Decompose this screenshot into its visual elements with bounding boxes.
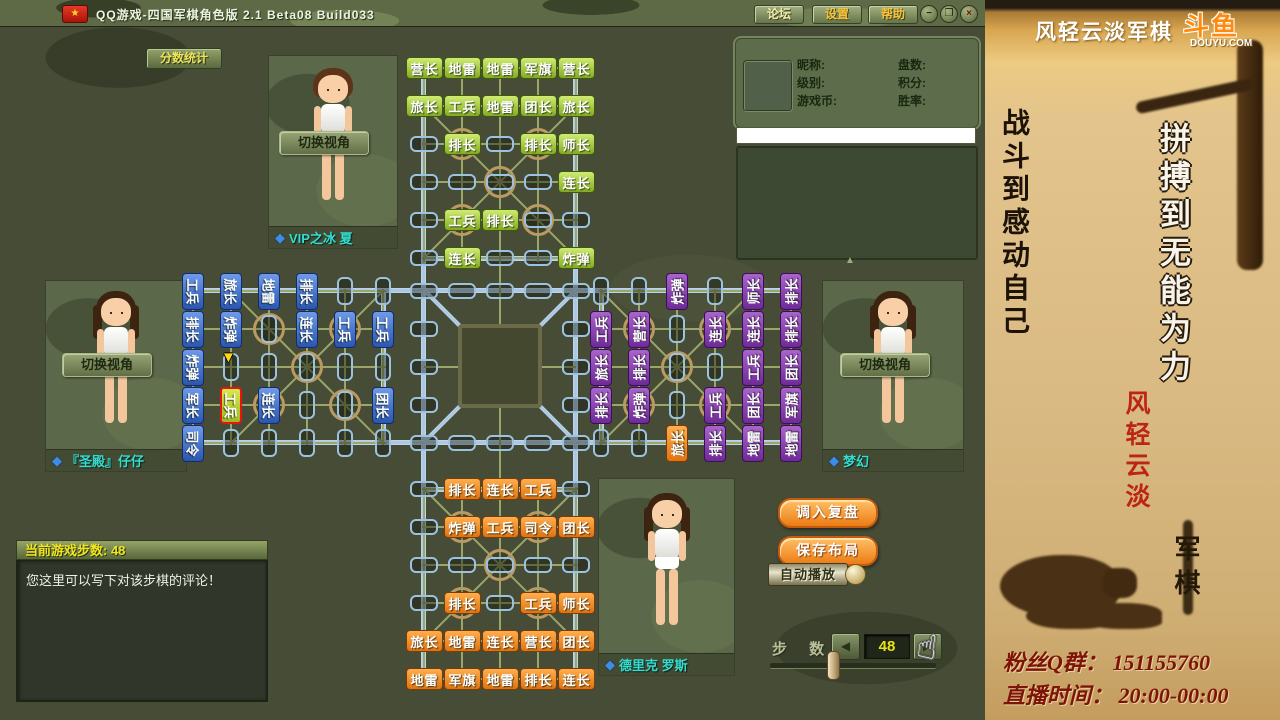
board-node[interactable]: [375, 429, 391, 457]
board-piece[interactable]: 地雷: [444, 57, 481, 79]
vip-gem-icon: ◆: [52, 453, 62, 469]
board-piece[interactable]: 排长: [780, 311, 802, 348]
board-node[interactable]: [707, 277, 723, 305]
ox-art: [1000, 555, 1120, 617]
board-piece[interactable]: 工兵: [182, 273, 204, 310]
switch-view-button-right[interactable]: 切换视角: [840, 353, 930, 377]
road-line: [599, 442, 795, 444]
board-piece[interactable]: 连长: [482, 630, 519, 652]
board-piece[interactable]: 师长: [558, 133, 595, 155]
road-line: [190, 442, 386, 444]
board-piece[interactable]: 军长: [182, 387, 204, 424]
board-piece[interactable]: 地雷: [258, 273, 280, 310]
stream-time: 直播时间： 20:00-00:00: [1003, 678, 1228, 710]
board-node[interactable]: [562, 212, 590, 228]
board-piece[interactable]: 地雷: [780, 425, 802, 462]
board-node[interactable]: [299, 391, 315, 419]
chat-input[interactable]: [736, 127, 976, 144]
board-node[interactable]: [486, 283, 514, 299]
board-node[interactable]: [562, 397, 590, 413]
board-node[interactable]: [410, 481, 438, 497]
board-piece[interactable]: 炸弹: [558, 247, 595, 269]
board-piece[interactable]: 旅长: [590, 349, 612, 386]
board-piece[interactable]: 工兵: [444, 95, 481, 117]
board-piece[interactable]: 连长: [258, 387, 280, 424]
steps-label: 步 数: [772, 638, 833, 659]
board-piece[interactable]: 连长: [704, 311, 726, 348]
autoplay-button[interactable]: 自动播放: [768, 563, 848, 586]
board-node[interactable]: [337, 353, 353, 381]
restore-button[interactable]: ❐: [940, 5, 958, 23]
board-node[interactable]: [524, 212, 552, 228]
board-node[interactable]: [707, 353, 723, 381]
player-name-bar: ◆ 德里克 罗斯: [599, 653, 734, 675]
move-counter-bar: 当前游戏步数: 48: [16, 540, 268, 560]
channel-title: 风轻云淡军棋: [1035, 16, 1173, 46]
board-node[interactable]: [410, 321, 438, 337]
board-node[interactable]: [524, 557, 552, 573]
minimize-button[interactable]: −: [920, 5, 938, 23]
board-piece[interactable]: 地雷: [742, 425, 764, 462]
winrate-label: 胜率:: [898, 92, 926, 109]
score-stats-button[interactable]: 分数统计: [146, 48, 222, 69]
board-piece[interactable]: 排长: [628, 349, 650, 386]
board-node[interactable]: [410, 435, 438, 451]
slogan-white: 拼搏到无能为力: [1150, 122, 1195, 388]
board-piece[interactable]: 团长: [372, 387, 394, 424]
board-piece[interactable]: 工兵: [444, 209, 481, 231]
board-piece[interactable]: 旅长: [406, 95, 443, 117]
board-node[interactable]: [410, 136, 438, 152]
board-piece[interactable]: 排长: [590, 387, 612, 424]
road-line: [190, 366, 386, 368]
settings-button[interactable]: 设置: [812, 5, 862, 24]
board-node[interactable]: [593, 277, 609, 305]
board-node[interactable]: [486, 557, 514, 573]
board-piece[interactable]: 排长: [704, 425, 726, 462]
board-node[interactable]: [562, 557, 590, 573]
board-piece[interactable]: 团长: [520, 95, 557, 117]
board-piece[interactable]: 连长: [558, 668, 595, 690]
board-piece[interactable]: 营长: [520, 630, 557, 652]
board-node[interactable]: [337, 277, 353, 305]
board-piece[interactable]: 营长: [406, 57, 443, 79]
player-name: 『圣殿』仔仔: [66, 451, 144, 470]
board-piece[interactable]: 营长: [558, 57, 595, 79]
board-piece[interactable]: 工兵: [482, 516, 519, 538]
board-node[interactable]: [486, 136, 514, 152]
board-node[interactable]: [562, 435, 590, 451]
board-piece[interactable]: 炸弹: [444, 516, 481, 538]
board-piece[interactable]: 旅长: [220, 273, 242, 310]
points-label: 积分:: [898, 74, 926, 91]
board-piece[interactable]: 排长: [780, 273, 802, 310]
board-node[interactable]: [524, 283, 552, 299]
save-layout-button[interactable]: 保存布局: [778, 536, 878, 566]
board-piece[interactable]: 地雷: [482, 57, 519, 79]
board-piece[interactable]: 师长: [558, 592, 595, 614]
board-node[interactable]: [562, 283, 590, 299]
comment-box[interactable]: 您这里可以写下对该步棋的评论！: [16, 560, 268, 702]
close-button[interactable]: ×: [960, 5, 978, 23]
board-piece[interactable]: 营长: [628, 311, 650, 348]
board-piece[interactable]: 工兵: [334, 311, 356, 348]
board-node[interactable]: [375, 277, 391, 305]
board-piece[interactable]: 团长: [558, 630, 595, 652]
board-piece[interactable]: 旅长: [558, 95, 595, 117]
board-piece[interactable]: 排长: [482, 209, 519, 231]
vip-gem-icon: ◆: [829, 453, 839, 469]
board-node[interactable]: [410, 519, 438, 535]
board-piece[interactable]: 军旗: [520, 57, 557, 79]
board-piece[interactable]: 炸弹: [182, 349, 204, 386]
board-piece[interactable]: 连长: [444, 247, 481, 269]
board-node[interactable]: [669, 315, 685, 343]
player-name: 德里克 罗斯: [619, 655, 688, 674]
board-piece[interactable]: 连长: [558, 171, 595, 193]
board-node[interactable]: [261, 315, 277, 343]
load-replay-button[interactable]: 调入复盘: [778, 498, 878, 528]
board-node[interactable]: [524, 435, 552, 451]
game-name-vertical: 军棋: [1167, 535, 1204, 603]
info-avatar-slot: [743, 60, 793, 112]
title-bar: ★ QQ游戏-四国军棋角色版 2.1 Beta08 Build033 论坛 设置…: [0, 0, 985, 27]
board-piece[interactable]: 军旗: [780, 387, 802, 424]
board-node[interactable]: [486, 435, 514, 451]
board-piece[interactable]: 团长: [780, 349, 802, 386]
board-piece[interactable]: 连长: [742, 311, 764, 348]
board-piece[interactable]: 旅长: [666, 425, 688, 462]
step-slider-track[interactable]: [770, 663, 936, 669]
board-piece[interactable]: 司令: [520, 516, 557, 538]
selected-cursor-icon: ▼: [221, 349, 236, 366]
board-node[interactable]: [337, 429, 353, 457]
slogan-black: 战斗到感动自己: [993, 108, 1033, 339]
game-window: ★ QQ游戏-四国军棋角色版 2.1 Beta08 Build033 论坛 设置…: [0, 0, 987, 720]
board-node[interactable]: [410, 557, 438, 573]
board-node[interactable]: [375, 353, 391, 381]
board-node[interactable]: [410, 283, 438, 299]
board-node[interactable]: [223, 429, 239, 457]
hand-cursor-icon: ☝: [914, 626, 939, 667]
stream-overlay: 风轻云淡军棋 斗鱼 DOUYU.COM 战斗到感动自己 拼搏到无能为力 风轻云淡…: [985, 0, 1280, 720]
board-piece[interactable]: 连长: [296, 311, 318, 348]
board-node[interactable]: [562, 359, 590, 375]
board-node[interactable]: [410, 397, 438, 413]
board-piece[interactable]: 地雷: [406, 668, 443, 690]
board-node[interactable]: [631, 277, 647, 305]
douyu-domain: DOUYU.COM: [1190, 38, 1252, 49]
screenshot-stage: ★ QQ游戏-四国军棋角色版 2.1 Beta08 Build033 论坛 设置…: [0, 0, 1280, 720]
board-piece[interactable]: 司令: [182, 425, 204, 462]
player-name-bar: ◆ 『圣殿』仔仔: [46, 449, 186, 471]
board-node[interactable]: [448, 557, 476, 573]
board-node[interactable]: [486, 174, 514, 190]
board-piece[interactable]: 旅长: [406, 630, 443, 652]
step-slider-thumb[interactable]: [827, 651, 840, 680]
bullet-tip-icon: [845, 564, 866, 585]
board-piece[interactable]: 地雷: [444, 630, 481, 652]
player-name-bar: ◆ VIP之冰 夏: [269, 226, 397, 248]
board-node[interactable]: [299, 429, 315, 457]
board-piece[interactable]: 师长: [742, 273, 764, 310]
switch-view-button-top[interactable]: 切换视角: [279, 131, 369, 155]
board-node[interactable]: [410, 250, 438, 266]
board-piece[interactable]: 炸弹: [220, 311, 242, 348]
avatar-figure: [637, 493, 697, 643]
board-node[interactable]: [562, 321, 590, 337]
board-piece[interactable]: 连长: [482, 478, 519, 500]
board-piece[interactable]: 地雷: [482, 95, 519, 117]
help-button[interactable]: 帮助: [868, 5, 918, 24]
scroll-up-icon[interactable]: ▲: [845, 255, 855, 266]
player-panel-bottom: ◆ 德里克 罗斯: [598, 478, 735, 676]
board-piece[interactable]: 排长: [444, 592, 481, 614]
board-node[interactable]: [669, 353, 685, 381]
board-node[interactable]: [261, 429, 277, 457]
board-piece[interactable]: 排长: [444, 478, 481, 500]
board-node[interactable]: [410, 595, 438, 611]
board-piece[interactable]: 团长: [558, 516, 595, 538]
board-piece[interactable]: 工兵: [520, 592, 557, 614]
fans-qq-group: 粉丝Q群： 151155760: [1003, 645, 1210, 677]
forum-button[interactable]: 论坛: [754, 5, 804, 24]
board-node[interactable]: [486, 595, 514, 611]
board-piece[interactable]: 工兵: [520, 478, 557, 500]
board-node[interactable]: [448, 435, 476, 451]
board-piece[interactable]: 炸弹: [666, 273, 688, 310]
board-piece[interactable]: 排长: [296, 273, 318, 310]
coins-label: 游戏币:: [797, 92, 837, 109]
board-node[interactable]: [631, 429, 647, 457]
board-piece[interactable]: 工兵: [590, 311, 612, 348]
board-node[interactable]: [669, 391, 685, 419]
step-value: 48: [864, 634, 910, 659]
window-title: QQ游戏-四国军棋角色版 2.1 Beta08 Build033: [96, 6, 375, 23]
vip-gem-icon: ◆: [605, 657, 615, 673]
streamer-name-vertical: 风轻云淡: [1117, 390, 1153, 514]
board-node[interactable]: [410, 359, 438, 375]
level-label: 级别:: [797, 74, 825, 91]
qq-game-logo-icon: ★: [62, 5, 88, 23]
board-node[interactable]: [261, 353, 277, 381]
board-piece[interactable]: 排长: [520, 668, 557, 690]
board-piece[interactable]: 地雷: [482, 668, 519, 690]
switch-view-button-left[interactable]: 切换视角: [62, 353, 152, 377]
board-node[interactable]: [486, 250, 514, 266]
vip-gem-icon: ◆: [275, 230, 285, 246]
player-name-bar: ◆ 梦幻: [823, 449, 963, 471]
board-node[interactable]: [410, 174, 438, 190]
board-node[interactable]: [524, 174, 552, 190]
board-node[interactable]: [562, 481, 590, 497]
board-piece[interactable]: 炸弹: [628, 387, 650, 424]
board-node[interactable]: [524, 250, 552, 266]
player-info-panel: 昵称: 级别: 游戏币: 盘数: 积分: 胜率:: [733, 36, 981, 130]
board-node[interactable]: [410, 212, 438, 228]
games-label: 盘数:: [898, 56, 926, 73]
board-node[interactable]: [299, 353, 315, 381]
board-piece[interactable]: 工兵: [704, 387, 726, 424]
chat-log-panel[interactable]: [736, 146, 978, 260]
nickname-label: 昵称:: [797, 56, 825, 73]
board-piece[interactable]: 团长: [742, 387, 764, 424]
player-name: 梦幻: [843, 451, 869, 470]
player-name: VIP之冰 夏: [289, 228, 353, 247]
board-piece[interactable]: 排长: [182, 311, 204, 348]
board-node[interactable]: [448, 174, 476, 190]
board-node[interactable]: [593, 429, 609, 457]
ox-head-art: [1103, 568, 1137, 598]
center-square: [458, 324, 542, 408]
road-line: [599, 290, 795, 292]
board-piece[interactable]: 排长: [444, 133, 481, 155]
board-node[interactable]: [448, 283, 476, 299]
board-node[interactable]: [337, 391, 353, 419]
board-piece[interactable]: 工兵: [372, 311, 394, 348]
board-piece[interactable]: 工兵: [220, 387, 242, 424]
board-piece[interactable]: 工兵: [742, 349, 764, 386]
road-line: [423, 487, 425, 683]
tree-art: [1237, 40, 1263, 270]
board-piece[interactable]: 排长: [520, 133, 557, 155]
board-piece[interactable]: 军旗: [444, 668, 481, 690]
